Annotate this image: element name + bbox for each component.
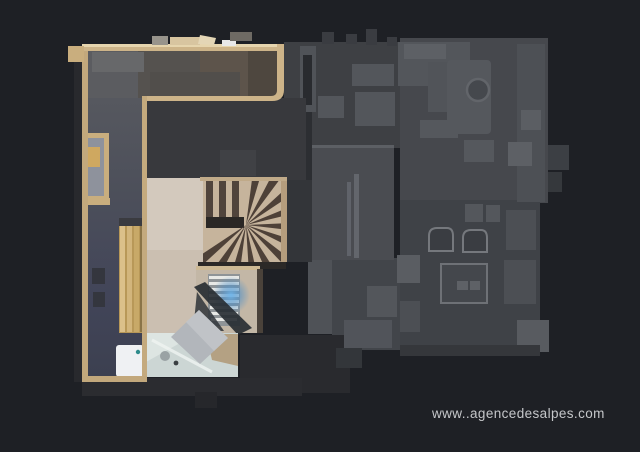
svg-text:www..agencedesalpes.com: www..agencedesalpes.com	[431, 406, 605, 421]
